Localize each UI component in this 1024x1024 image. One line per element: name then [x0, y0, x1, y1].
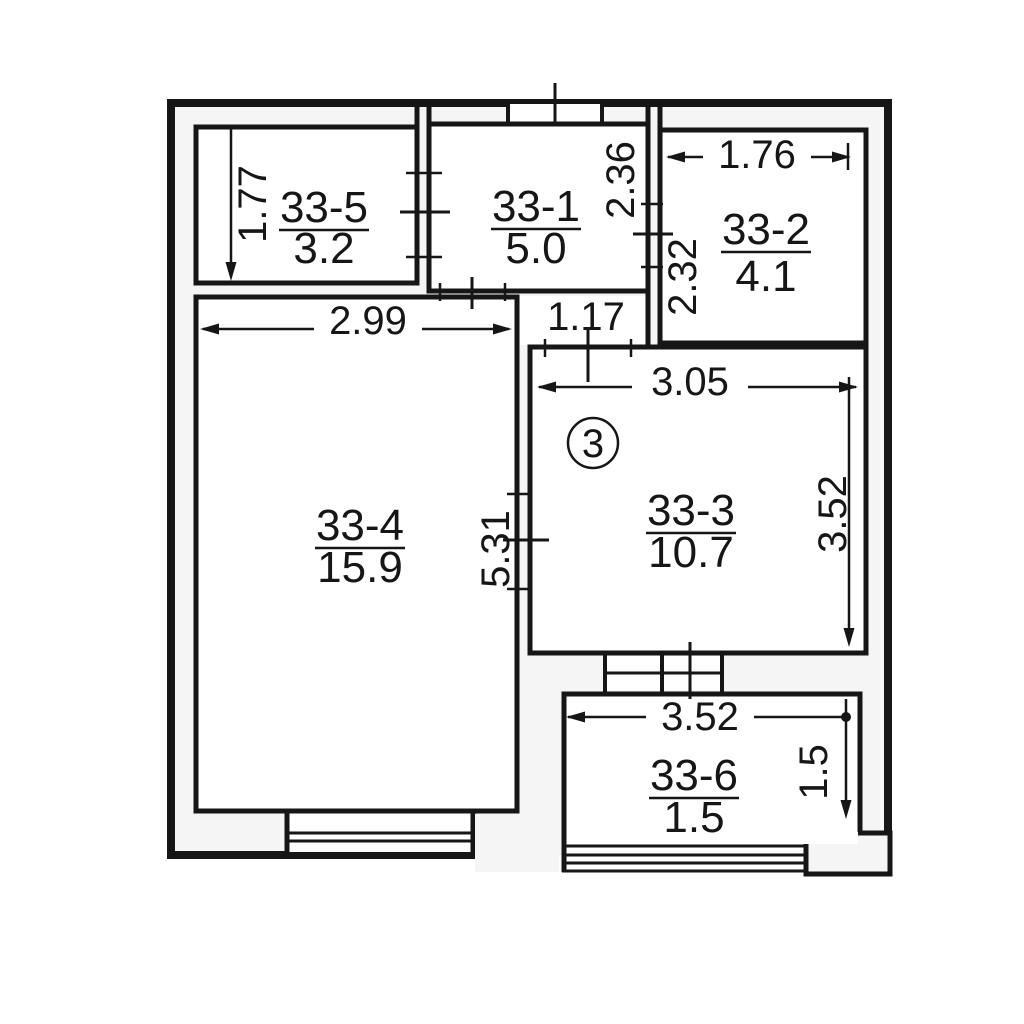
dim-room3-width-label: 3.05	[651, 360, 729, 404]
room-33-2-area: 4.1	[735, 252, 796, 301]
dim-room4-width-label: 2.99	[329, 299, 407, 343]
floor-plan-drawing: 1.77 2.99 1.76 2.36 2.32 1.17	[0, 0, 1024, 1024]
room-33-3-area: 10.7	[648, 528, 734, 577]
dim-room4-height-label: 5.31	[474, 510, 518, 588]
window-room4	[285, 811, 475, 853]
room-33-1-area: 5.0	[505, 224, 566, 273]
unit-badge: 3	[568, 418, 618, 468]
unit-badge-label: 3	[582, 422, 604, 466]
balcony-glazing	[562, 843, 806, 873]
dim-wall12-lower-label: 2.32	[661, 238, 705, 316]
room-33-5-area: 3.2	[293, 224, 354, 273]
dim-room2-width-label: 1.76	[718, 133, 796, 177]
dim-room5-height-label: 1.77	[231, 165, 275, 243]
wall-block-left	[475, 814, 559, 872]
dim-room3-height-label: 3.52	[811, 475, 855, 553]
plan-root: 1.77 2.99 1.76 2.36 2.32 1.17	[171, 83, 890, 874]
dim-corridor-width-label: 1.17	[547, 295, 625, 339]
floor-plan-canvas: 1.77 2.99 1.76 2.36 2.32 1.17	[0, 0, 1024, 1024]
room-33-4-area: 15.9	[317, 543, 403, 592]
room-33-4-label: 33-4 15.9	[315, 501, 405, 592]
dim-balcony-height-label: 1.5	[792, 744, 836, 800]
room-33-6-area: 1.5	[663, 793, 724, 842]
room-33-3-label: 33-3 10.7	[646, 486, 736, 577]
room-33-2-id: 33-2	[722, 205, 810, 254]
dim-wall12-upper-label: 2.36	[599, 141, 643, 219]
dim-balcony-width-label: 3.52	[661, 695, 739, 739]
